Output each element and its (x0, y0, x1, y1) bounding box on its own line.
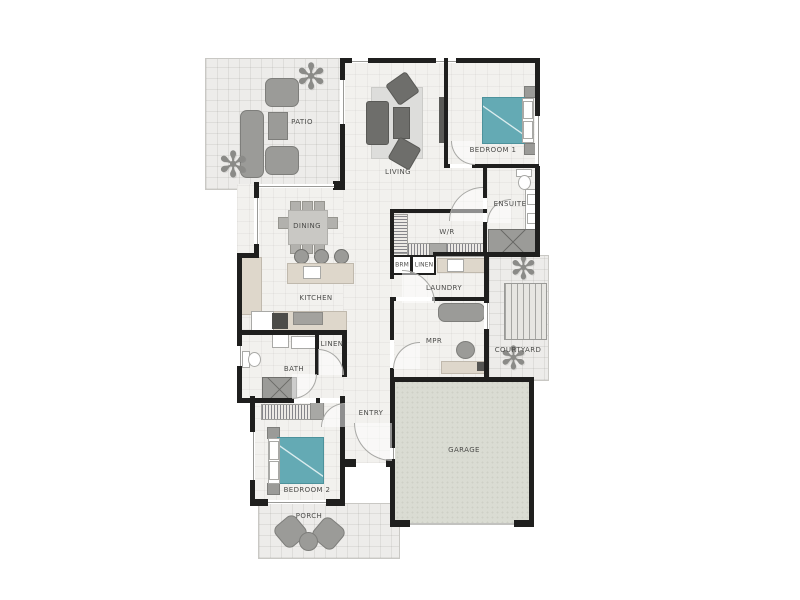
porch-table (299, 532, 318, 551)
floor-plan: ✻ ✻ ✻ ✻ (0, 0, 800, 600)
room-label-porch: PORCH (296, 512, 322, 520)
vanity (291, 336, 316, 349)
window (268, 500, 326, 504)
room-label-wir: W/R (439, 228, 454, 236)
island-sink (303, 266, 321, 279)
bar-stool (314, 249, 329, 264)
room-label-laundry: LAUNDRY (426, 284, 462, 292)
room-label-patio: PATIO (291, 118, 313, 126)
sofa (366, 101, 389, 145)
wall (433, 252, 487, 256)
room-label-mpr: MPR (426, 337, 442, 345)
room-label-entry: ENTRY (359, 409, 384, 417)
wall (390, 377, 534, 382)
window (340, 80, 345, 124)
bed (482, 97, 525, 144)
window (250, 432, 255, 480)
wall (514, 520, 534, 527)
sliding-door (259, 184, 334, 188)
room-label-bath: BATH (284, 365, 304, 373)
cooktop (272, 313, 288, 329)
wall (390, 257, 394, 279)
window (237, 346, 242, 366)
outdoor-chair (265, 146, 299, 175)
room-label-kitchen: KITCHEN (299, 294, 332, 302)
outdoor-chair (265, 78, 299, 107)
window (352, 58, 368, 63)
wall (487, 252, 540, 257)
wall (237, 253, 242, 332)
outdoor-table (268, 112, 288, 140)
kitchen-counter (241, 257, 262, 315)
bar-stool (334, 249, 349, 264)
plant-icon: ✻ (296, 60, 326, 96)
cabinet (272, 334, 289, 348)
laundry-sink (447, 259, 464, 272)
room-label-bedroom1: BEDROOM 1 (470, 146, 517, 154)
window (484, 303, 489, 329)
wall-post (333, 181, 343, 190)
wall (326, 499, 345, 506)
room-label-courtyard: COURTYARD (495, 346, 542, 354)
bed (277, 437, 324, 484)
wall (237, 330, 347, 335)
wall (444, 58, 448, 168)
wardrobe-rail (261, 404, 312, 420)
pillow (523, 101, 533, 119)
mpr-sofa (438, 303, 485, 322)
desk-item (477, 362, 484, 371)
pillow (269, 461, 279, 480)
door-opening (294, 398, 316, 403)
window (535, 116, 540, 166)
wall (390, 520, 410, 527)
pillow (269, 441, 279, 460)
garage-door (410, 523, 514, 525)
room-label-broom: BRM (395, 262, 409, 269)
room-label-dining: DINING (293, 222, 321, 230)
room-label-living: LIVING (385, 168, 411, 176)
office-chair (456, 341, 475, 359)
appliance (293, 312, 323, 325)
door-opening (320, 398, 340, 403)
toilet (518, 175, 531, 190)
wall (340, 58, 345, 190)
coffee-table (393, 107, 410, 139)
room-label-garage: GARAGE (448, 446, 480, 454)
room-label-linen-bath: LINEN (321, 340, 344, 348)
deck (504, 283, 547, 340)
wall (390, 209, 394, 257)
room-label-linen-laundry: LINEN (415, 262, 433, 269)
bar-stool (294, 249, 309, 264)
window (254, 198, 259, 244)
wall (529, 377, 534, 527)
door-opening (450, 164, 472, 168)
pillow (523, 121, 533, 139)
room-label-bedroom2: BEDROOM 2 (284, 486, 331, 494)
room-label-ensuite: ENSUITE (494, 200, 527, 208)
bedside-table (267, 483, 280, 495)
toilet (248, 352, 261, 367)
wardrobe-rail (393, 214, 408, 254)
plant-icon: ✻ (218, 148, 248, 184)
